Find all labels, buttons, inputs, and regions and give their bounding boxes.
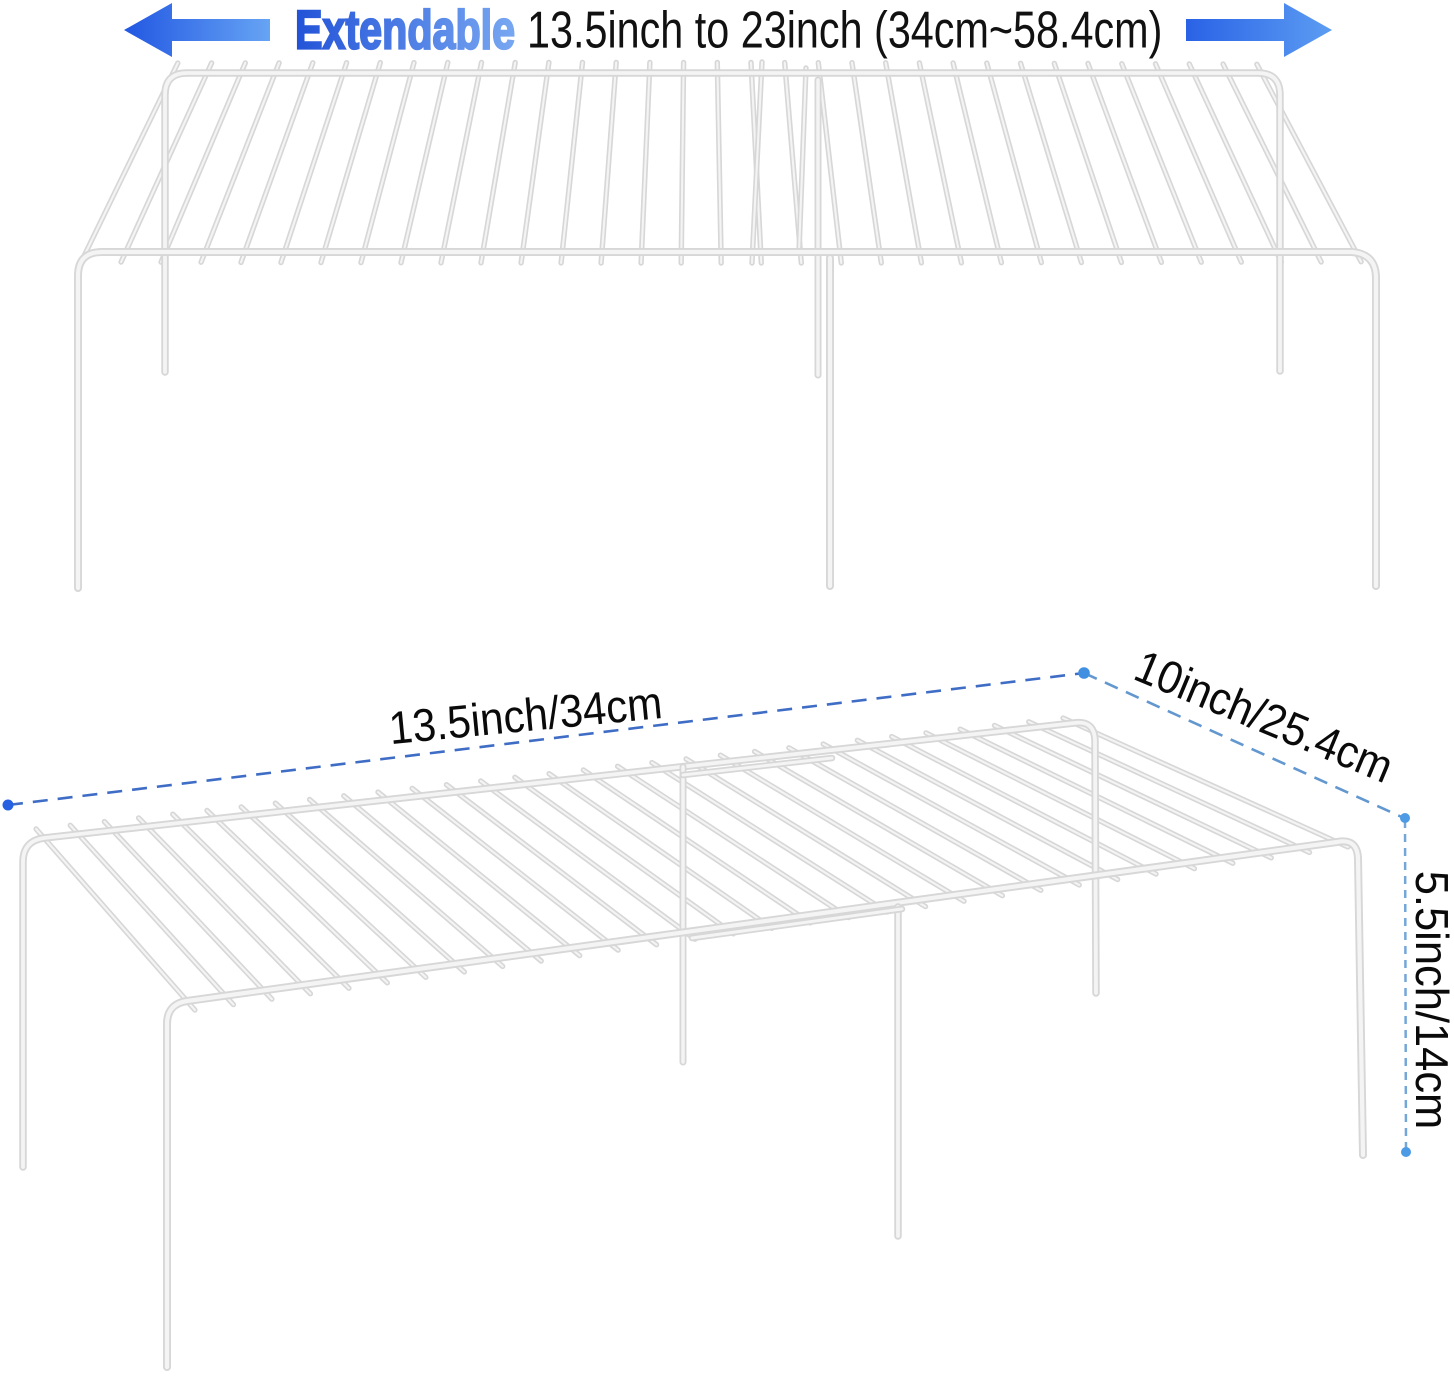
svg-text:5.5inch/14cm: 5.5inch/14cm — [1406, 871, 1454, 1130]
svg-text:Extendable: Extendable — [295, 0, 515, 61]
svg-text:13.5inch/34cm: 13.5inch/34cm — [387, 677, 665, 754]
svg-text:10inch/25.4cm: 10inch/25.4cm — [1127, 641, 1400, 793]
svg-text:13.5inch to 23inch (34cm~58.4c: 13.5inch to 23inch (34cm~58.4cm) — [527, 1, 1162, 58]
